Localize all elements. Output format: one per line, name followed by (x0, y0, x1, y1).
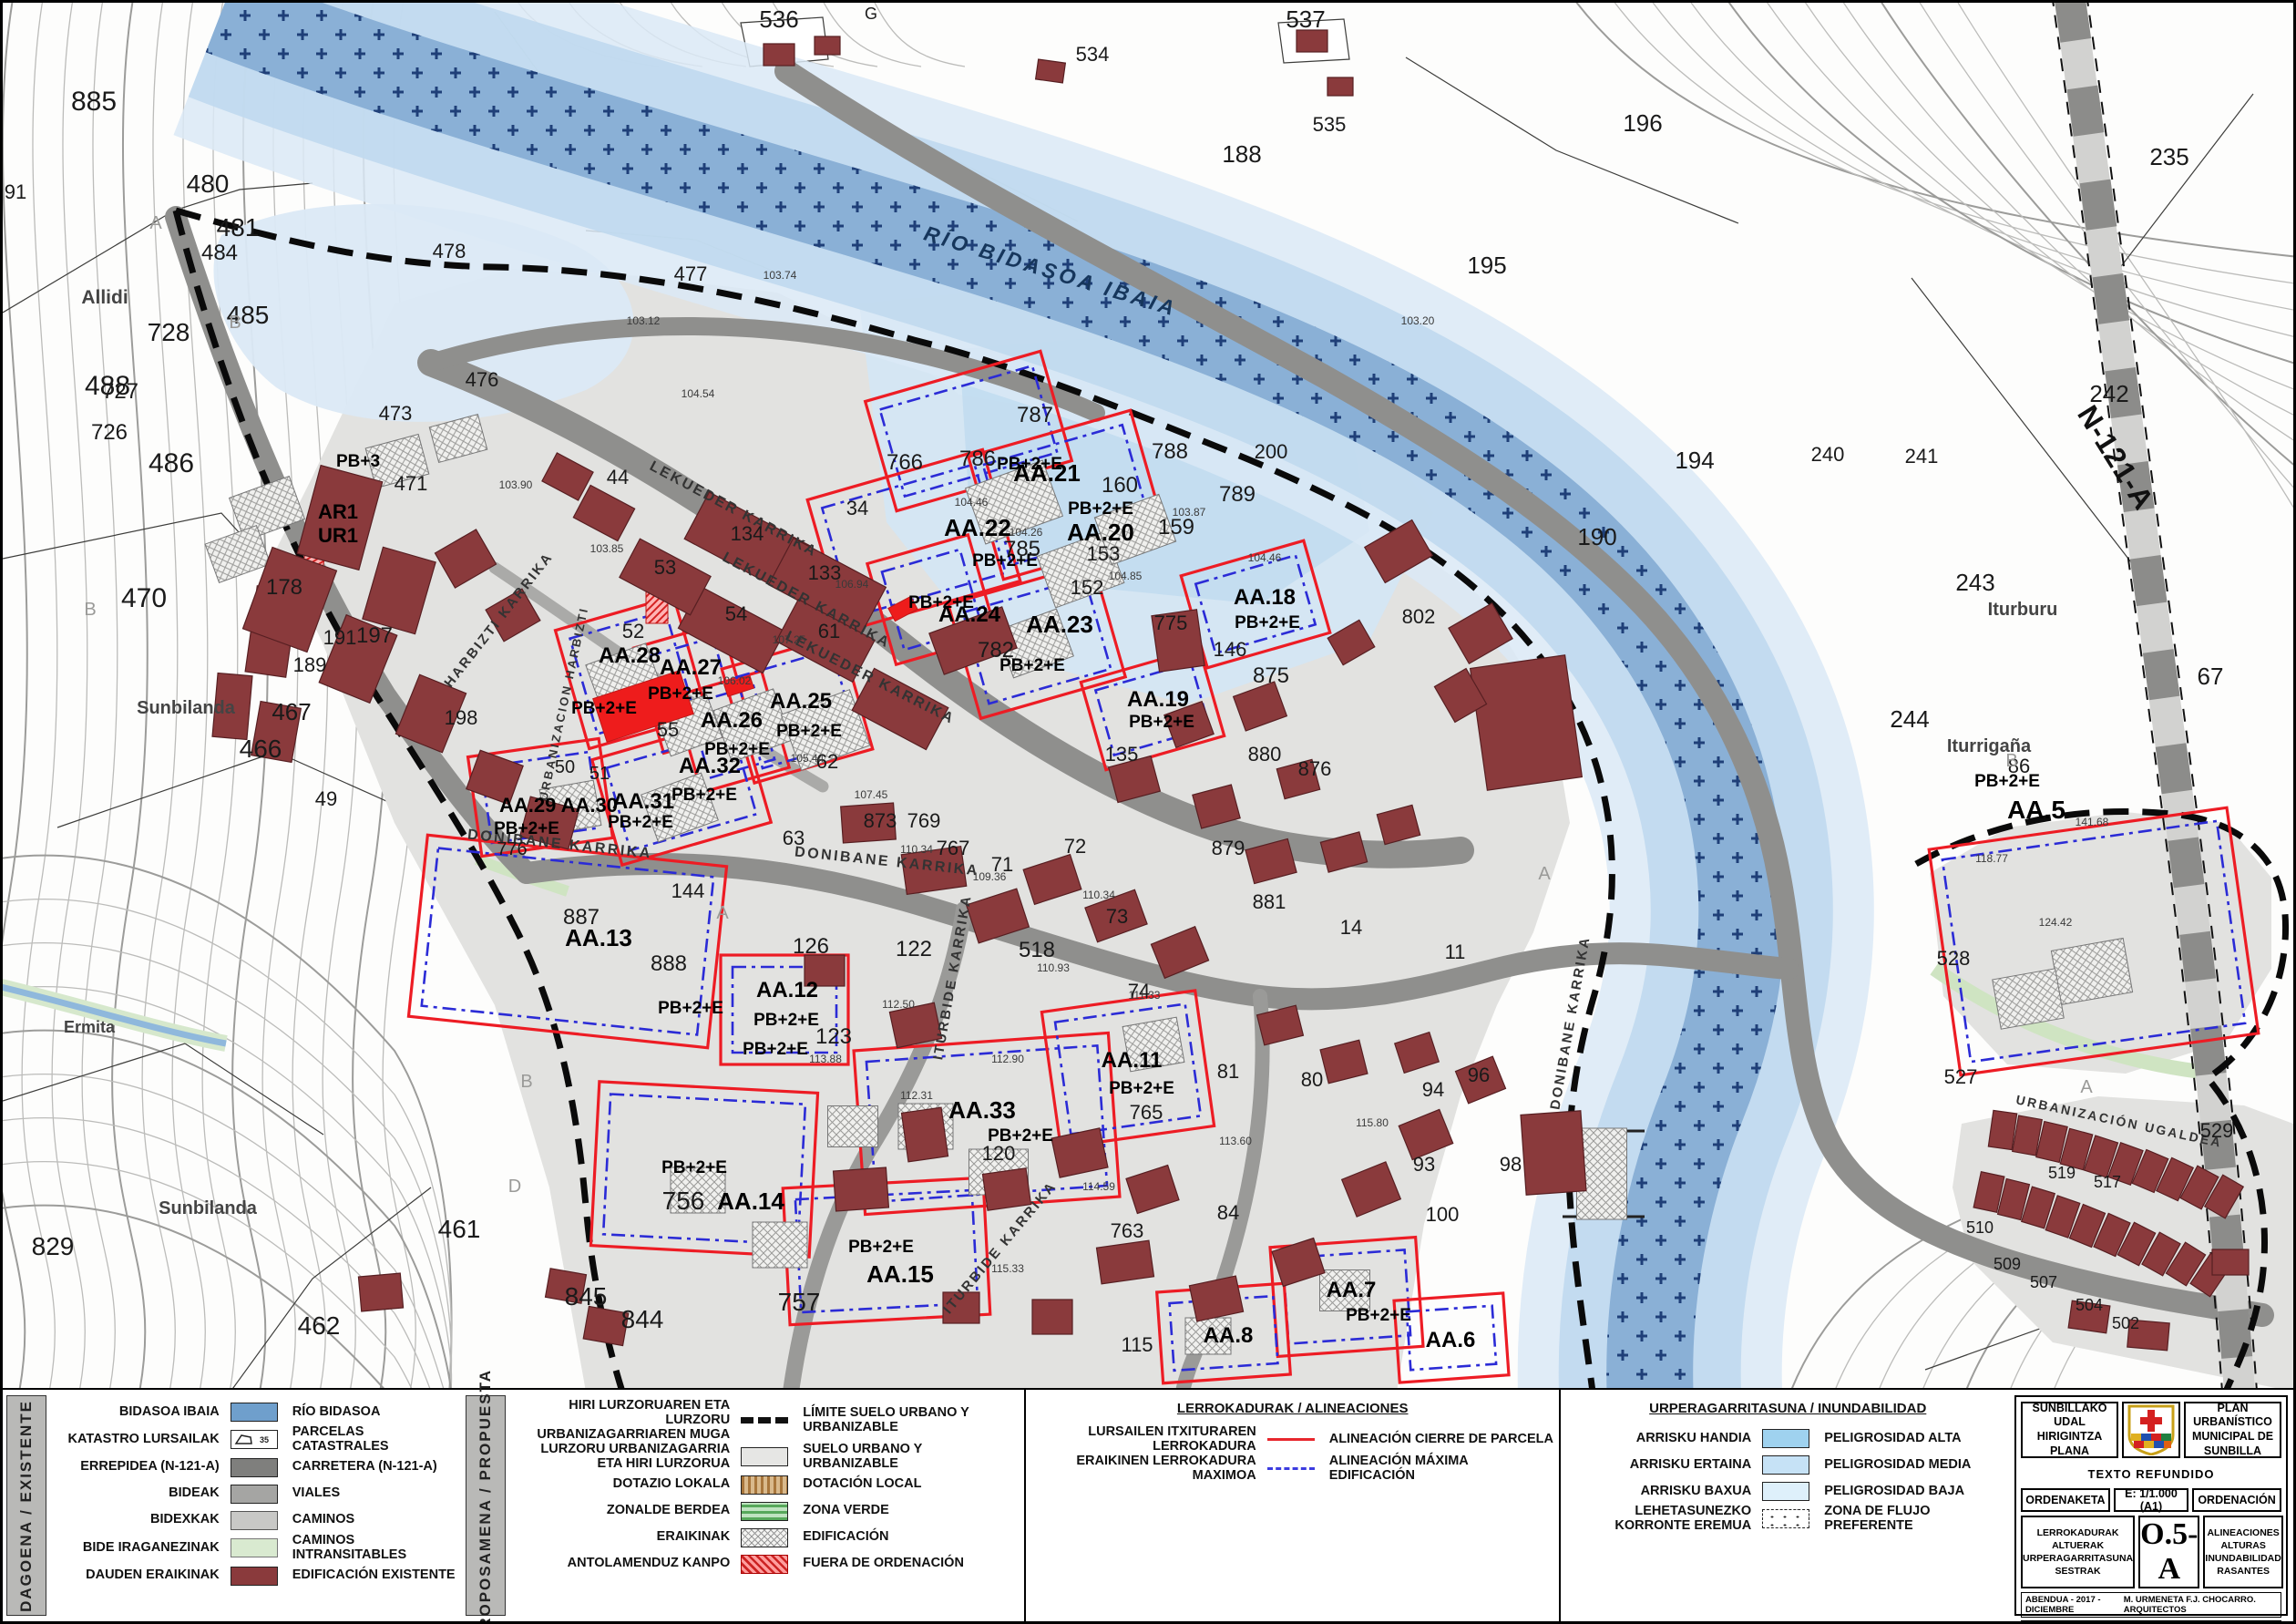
map-label-n: 476 (466, 368, 499, 391)
existing-row-4: BIDEXKAKCAMINOS (56, 1507, 456, 1534)
map-label-n: 881 (1253, 890, 1286, 913)
map-label-n: 767 (937, 837, 970, 859)
map-label-N: 196 (1623, 109, 1662, 137)
map-label-n: 875 (1253, 663, 1289, 688)
legend-swatch-road (231, 1458, 278, 1477)
map-label-p: PB+2+E (743, 1040, 808, 1059)
map-label-n: 467 (272, 698, 311, 725)
legend-label-eu: ZONALDE BERDEA (515, 1504, 731, 1518)
map-label-pl: Allidi (81, 287, 128, 308)
inundabilidad-row-3: LEHETASUNEZKO KORRONTE EREMUAZONA DE FLU… (1566, 1505, 2009, 1534)
legend-label-eu: ARRISKU HANDIA (1566, 1432, 1751, 1446)
ordenaketa-label: ORDENAKETA (2021, 1488, 2110, 1512)
map-label-n: 765 (1130, 1101, 1163, 1124)
legend-swatch-flujo (1762, 1509, 1809, 1528)
legend-label-eu: ERAIKINAK (515, 1530, 731, 1545)
map-label-e: 104.46 (1248, 551, 1282, 564)
map-label-n: 471 (395, 472, 428, 495)
map-label-N: 728 (148, 318, 190, 346)
map-label-z: AA.18 (1234, 585, 1296, 610)
map-label-e: 104.85 (1109, 570, 1143, 582)
map-label-p: PB+2+E (1129, 713, 1194, 732)
map-label-p: PB+2+E (571, 699, 637, 718)
map-label-e: 110.34 (1082, 889, 1115, 901)
map-label-N: 536 (759, 5, 798, 33)
map-label-e: 111.33 (1129, 989, 1161, 1002)
map-label-e: 105.44 (791, 752, 825, 765)
map-label-lt: A (149, 213, 162, 233)
map-label-n: 115 (1121, 1333, 1153, 1356)
map-label-n: 879 (1212, 837, 1245, 859)
building (834, 1167, 889, 1211)
map-label-n: 134 (731, 522, 764, 545)
map-label-pl: Iturburu (1988, 600, 2058, 620)
legend-label-eu: BIDEAK (56, 1486, 220, 1501)
legend-label-es: PELIGROSIDAD MEDIA (1824, 1458, 2009, 1473)
map-label-N: 466 (240, 735, 282, 763)
map-label-N: 188 (1222, 140, 1261, 168)
map-label-p: PB+2+E (494, 819, 559, 838)
legend-label-es: PELIGROSIDAD ALTA (1824, 1432, 2009, 1446)
map-label-p: PB+2+E (1109, 1079, 1174, 1098)
proposal-row-0: HIRI LURZORUAREN ETA LURZORU URBANIZAGAR… (515, 1399, 1019, 1443)
map-label-N: 235 (2149, 143, 2188, 170)
proposal-row-3: ZONALDE BERDEAZONA VERDE (515, 1498, 1019, 1525)
map-label-pl: Ermita (64, 1018, 116, 1036)
map-label-n: 61 (818, 620, 840, 642)
existing-row-3: BIDEAKVIALES (56, 1481, 456, 1507)
legend-label-eu: LEHETASUNEZKO KORRONTE EREMUA (1566, 1505, 1751, 1534)
legend-swatch-verde (741, 1502, 788, 1521)
map-label-N: 243 (1955, 569, 1994, 596)
map-label-p: PB+2+E (848, 1238, 914, 1257)
legend-swatch-alred (1267, 1438, 1315, 1441)
map-label-n: 122 (896, 937, 932, 961)
proposal-row-5: ANTOLAMENDUZ KANPOFUERA DE ORDENACIÓN (515, 1551, 1019, 1578)
map-label-n: 509 (1994, 1255, 2021, 1273)
map-label-n: 789 (1219, 482, 1256, 507)
edification-hatch (1993, 969, 2064, 1029)
map-label-N: 190 (1577, 523, 1616, 550)
map-label-n: 189 (293, 653, 327, 676)
legend-swatch-baja (1762, 1482, 1809, 1501)
map-label-z: AA.7 (1327, 1278, 1377, 1302)
map-label-z: AA.15 (866, 1260, 934, 1288)
map-label-N: 462 (298, 1311, 341, 1340)
building (1096, 1240, 1153, 1284)
legend-bar-existing: DAGOENA / EXISTENTE (6, 1395, 46, 1616)
legend-alineaciones: LERROKADURAK / ALINEACIONES LURSAILEN IT… (1024, 1390, 1559, 1621)
map-label-n: 880 (1248, 743, 1282, 766)
map-label-n: 159 (1158, 515, 1194, 540)
map-label-n: 507 (2030, 1273, 2057, 1291)
map-label-e: 115.80 (1356, 1116, 1389, 1129)
map-label-p: PB+2+E (908, 593, 974, 612)
map-label-p: PB+3 (336, 452, 380, 471)
map-label-n: 502 (2112, 1314, 2139, 1332)
building (358, 1273, 403, 1311)
title-plan: PLAN URBANÍSTICOMUNICIPAL DE SUNBILLA (2184, 1402, 2281, 1458)
map-label-e: 141.68 (2076, 816, 2109, 828)
map-label-n: 776 (497, 839, 527, 859)
map-label-n: 73 (1106, 905, 1128, 928)
legend-swatch-media (1762, 1455, 1809, 1475)
map-label-n: 53 (654, 556, 676, 579)
map-label-n: 178 (266, 575, 302, 600)
map-label-n: 135 (1105, 743, 1139, 766)
map-label-n: 241 (1905, 445, 1939, 468)
map-label-p: PB+2+E (776, 722, 842, 741)
map-label-N: 67 (2198, 663, 2224, 690)
map-label-lt: B (84, 600, 96, 620)
map-label-pl: Sunbilanda (159, 1198, 258, 1218)
map-label-n: 782 (978, 638, 1014, 663)
legend-label-es: ALINEACIÓN CIERRE DE PARCELA (1329, 1433, 1554, 1447)
map-label-e: 113.88 (809, 1053, 842, 1065)
map-label-z: AA.6 (1426, 1328, 1476, 1352)
map-label-z: AA.33 (948, 1096, 1016, 1124)
alineacion-row-1: ERAIKINEN LERROKADURA MAXIMOAALINEACIÓN … (1031, 1454, 1553, 1484)
legend-label-eu: KATASTRO LURSAILAK (56, 1433, 220, 1447)
map-label-n: 197 (356, 623, 393, 648)
map-label-n: 51 (589, 764, 610, 784)
map-label-e: 103.90 (499, 478, 533, 491)
map-label-e: 118.77 (1975, 852, 2008, 865)
map-label-N: 829 (32, 1232, 75, 1260)
map-label-n: 727 (102, 379, 138, 404)
map-label-N: 242 (2089, 380, 2128, 407)
building (815, 36, 840, 55)
map-label-e: 110.93 (1037, 961, 1070, 974)
inundabilidad-row-1: ARRISKU ERTAINAPELIGROSIDAD MEDIA (1566, 1452, 2009, 1478)
inundabilidad-row-0: ARRISKU HANDIAPELIGROSIDAD ALTA (1566, 1425, 2009, 1452)
proposal-row-1: LURZORU URBANIZAGARRIA ETA HIRI LURZORUA… (515, 1443, 1019, 1472)
map-label-n: 123 (815, 1024, 852, 1049)
map-label-lt: A (1538, 864, 1551, 884)
legend-swatch-intrans (231, 1538, 278, 1557)
edification-hatch (753, 1222, 807, 1268)
map-label-e: 104.26 (1010, 526, 1043, 539)
proposal-row-2: DOTAZIO LOKALADOTACIÓN LOCAL (515, 1472, 1019, 1498)
legend-label-es: CAMINOS (292, 1513, 456, 1527)
map-label-N: 480 (187, 170, 230, 198)
map-label-n: 152 (1071, 576, 1104, 599)
legend-label-eu: ARRISKU ERTAINA (1566, 1458, 1751, 1473)
legend-band: DAGOENA / EXISTENTE BIDASOA IBAIARÍO BID… (3, 1388, 2293, 1621)
map-label-n: 120 (982, 1142, 1016, 1165)
map-label-z: AA.22 (944, 514, 1011, 541)
legend-swatch-dotacion (741, 1475, 788, 1495)
existing-row-1: KATASTRO LURSAILAK35PARCELAS CATASTRALES (56, 1425, 456, 1454)
map-label-z: AA.23 (1026, 611, 1093, 638)
map-label-e: 103.85 (590, 542, 624, 555)
map-label-p: PB+2+E (661, 1158, 727, 1177)
svg-text:35: 35 (260, 1435, 269, 1444)
map-label-e: 107.25 (773, 633, 806, 646)
sheet-subject-es: ALINEACIONESALTURASINUNDABILIDADRASANTES (2203, 1516, 2282, 1588)
legend-label-eu: DAUDEN ERAIKINAK (56, 1568, 220, 1583)
scale-label: E: 1/1.000 (A1) (2114, 1488, 2188, 1512)
map-label-p: PB+2+E (1068, 499, 1133, 519)
map-label-n: 240 (1811, 443, 1845, 466)
map-label-n: 91 (5, 180, 26, 203)
map-label-e: 113.60 (1219, 1135, 1252, 1147)
proposal-row-4: ERAIKINAKEDIFICACIÓN (515, 1525, 1019, 1551)
map-label-n: 510 (1966, 1218, 1994, 1237)
map-label-p: PB+2+E (648, 684, 713, 704)
building (1327, 77, 1353, 96)
map-label-z: AR1 (318, 500, 358, 523)
map-label-n: 94 (1422, 1078, 1444, 1101)
map-label-z: AA.14 (717, 1187, 784, 1215)
map-label-lt: A (716, 903, 729, 923)
map-label-e: 112.90 (991, 1053, 1024, 1065)
map-label-p: PB+2+E (1346, 1306, 1411, 1325)
legend-bar-proposal: PROPOSAMENA / PROPUESTA (466, 1395, 506, 1616)
map-label-N: 845 (565, 1282, 608, 1311)
legend-proposal: HIRI LURZORUAREN ETA LURZORU URBANIZAGAR… (509, 1390, 1024, 1621)
map-label-N: 481 (217, 213, 260, 242)
map-label-lt: B (520, 1072, 532, 1092)
legend-label-es: ZONA DE FLUJO PREFERENTE (1824, 1505, 2009, 1534)
building (1521, 1111, 1586, 1195)
map-label-n: 786 (959, 447, 996, 471)
map-label-lt: B (2005, 751, 2017, 771)
legend-swatch-limite (741, 1417, 788, 1424)
legend-label-eu: LURSAILEN ITXITURAREN LERROKADURA (1031, 1425, 1256, 1454)
legend-label-eu: BIDASOA IBAIA (56, 1405, 220, 1420)
legend-swatch-edif (741, 1528, 788, 1547)
legend-swatch-edifex (231, 1567, 278, 1586)
map-label-n: 876 (1298, 757, 1332, 780)
legend-label-es: ZONA VERDE (803, 1504, 1019, 1518)
map-label-n: 504 (2076, 1296, 2103, 1314)
map-label-n: 160 (1102, 473, 1138, 498)
map-label-n: 72 (1064, 835, 1086, 858)
legend-swatch-urbano (741, 1447, 788, 1466)
map-label-n: 100 (1426, 1203, 1460, 1226)
legend-label-eu: HIRI LURZORUAREN ETA LURZORU URBANIZAGAR… (515, 1399, 731, 1443)
map-label-n: 473 (379, 402, 413, 425)
map-label-n: 200 (1255, 440, 1288, 463)
map-label-n: 478 (433, 240, 466, 262)
sheet-code: O.5-A (2138, 1516, 2199, 1588)
map-label-z: AA.19 (1127, 687, 1189, 712)
legend-label-es: CAMINOS INTRANSITABLES (292, 1534, 456, 1563)
inundabilidad-row-2: ARRISKU BAXUAPELIGROSIDAD BAJA (1566, 1478, 2009, 1505)
map-label-n: 54 (725, 602, 747, 625)
legend-inundabilidad: URPERAGARRITASUNA / INUNDABILIDAD ARRISK… (1559, 1390, 2014, 1621)
edification-hatch (828, 1106, 878, 1147)
legend-label-es: FUERA DE ORDENACIÓN (803, 1557, 1019, 1571)
ordenacion-label: ORDENACIÓN (2192, 1488, 2281, 1512)
legend-label-es: PELIGROSIDAD BAJA (1824, 1485, 2009, 1499)
map-label-N: 244 (1890, 705, 1929, 733)
title-udal: SUNBILLAKO UDALHIRIGINTZA PLANA (2021, 1402, 2118, 1458)
map-label-e: 110.34 (900, 843, 933, 856)
map-label-n: 153 (1087, 542, 1121, 565)
map-label-n: 527 (1944, 1065, 1978, 1088)
map-label-e: 106.02 (718, 674, 752, 687)
building (2212, 1249, 2249, 1275)
map-label-e: 124.42 (2039, 916, 2073, 929)
map-label-z: AA.5 (2007, 796, 2065, 824)
building (982, 1168, 1030, 1210)
map-label-n: 34 (846, 497, 868, 519)
map-label-p: PB+2+E (704, 740, 770, 759)
map-label-e: 104.54 (682, 387, 715, 400)
map-label-p: PB+2+E (1235, 613, 1300, 632)
map-label-n: 788 (1152, 439, 1188, 464)
existing-row-5: BIDE IRAGANEZINAKCAMINOS INTRANSITABLES (56, 1534, 456, 1563)
map-label-N: 844 (621, 1305, 664, 1333)
map-label-N: 194 (1675, 447, 1714, 474)
map-label-n: 63 (783, 827, 805, 849)
legend-label-es: DOTACIÓN LOCAL (803, 1477, 1019, 1492)
plan-sheet: RÍO BIDASOA IBAIAN-121-AAllidiSunbilanda… (0, 0, 2296, 1624)
existing-row-2: ERREPIDEA (N-121-A)CARRETERA (N-121-A) (56, 1454, 456, 1481)
map-label-n: 93 (1413, 1153, 1435, 1176)
legend-label-eu: ANTOLAMENDUZ KANPO (515, 1557, 731, 1571)
map-label-n: 98 (1500, 1153, 1522, 1176)
alineacion-row-0: LURSAILEN ITXITURAREN LERROKADURAALINEAC… (1031, 1425, 1553, 1454)
legend-swatch-cad: 35 (231, 1430, 278, 1449)
map-label-n: 763 (1111, 1219, 1144, 1242)
legend-swatch-river (231, 1403, 278, 1422)
legend-header-inundabilidad: URPERAGARRITASUNA / INUNDABILIDAD (1566, 1401, 2009, 1416)
building (1032, 1300, 1072, 1334)
map-label-pl: Iturrigaña (1947, 736, 2032, 756)
legend-swatch-alta (1762, 1429, 1809, 1448)
map-label-n: 775 (1154, 612, 1188, 634)
legend-label-es: CARRETERA (N-121-A) (292, 1460, 456, 1475)
building (1988, 1110, 2016, 1149)
date-authors-strip: ABENDUA - 2017 - DICIEMBREM. URMENETA F.… (2021, 1592, 2281, 1618)
map-label-n: 477 (674, 262, 708, 285)
codigo-strip: CÓDIGO:18096 (2021, 1620, 2281, 1624)
existing-row-6: DAUDEN ERAIKINAKEDIFICACIÓN EXISTENTE (56, 1563, 456, 1589)
map-label-n: 766 (887, 450, 923, 475)
map-label-n: 80 (1301, 1068, 1323, 1091)
map-label-e: 107.45 (855, 788, 888, 801)
map-label-p: PB+2+E (608, 813, 673, 832)
map-label-n: 44 (607, 466, 629, 488)
map-label-n: 146 (1214, 638, 1247, 661)
existing-row-0: BIDASOA IBAIARÍO BIDASOA (56, 1399, 456, 1425)
map-label-n: 84 (1217, 1201, 1239, 1224)
map-label-n: 802 (1402, 605, 1436, 628)
map-label-e: 103.74 (764, 269, 797, 282)
map-label-n: 534 (1076, 43, 1110, 66)
map-label-e: 112.31 (900, 1089, 933, 1102)
map-label-n: 518 (1019, 938, 1055, 962)
legend-label-es: ALINEACIÓN MÁXIMA EDIFICACIÓN (1329, 1454, 1554, 1484)
map-label-n: 55 (657, 718, 679, 741)
legend-label-eu: ERAIKINEN LERROKADURA MAXIMOA (1031, 1454, 1256, 1484)
map-label-n: 517 (2094, 1173, 2121, 1191)
legend-label-es: LÍMITE SUELO URBANO Y URBANIZABLE (803, 1406, 1019, 1435)
map-label-n: 484 (201, 241, 238, 265)
map-label-z: AA.29 AA.30 (499, 794, 618, 817)
map-label-lt: B (229, 313, 241, 333)
map-label-n: 50 (555, 757, 575, 777)
map-label-z: AA.31 (612, 789, 674, 814)
map-label-n: 529 (2200, 1119, 2234, 1142)
map-label-n: 519 (2048, 1164, 2076, 1182)
map-label-pl: Sunbilanda (137, 698, 236, 718)
map-label-N: 885 (71, 87, 117, 117)
map-label-N: 757 (778, 1288, 821, 1316)
legend-label-es: EDIFICACIÓN EXISTENTE (292, 1568, 456, 1583)
map-label-z: AA.25 (770, 689, 832, 714)
legend-swatch-vial (231, 1485, 278, 1504)
map-label-e: 103.20 (1401, 314, 1435, 327)
map-label-n: 49 (315, 787, 337, 810)
map-label-N: 486 (149, 448, 194, 478)
map-label-e: 103.12 (627, 314, 661, 327)
legend-label-es: RÍO BIDASOA (292, 1405, 456, 1420)
map-label-n: 726 (91, 420, 128, 445)
map-label-N: 537 (1286, 5, 1325, 33)
map-label-n: 198 (445, 706, 478, 729)
map-label-n: 11 (1445, 940, 1466, 963)
sheet-subject-eu: LERROKADURAKALTUERAKURPERAGARRITASUNASES… (2021, 1516, 2135, 1588)
map-label-n: 535 (1313, 113, 1347, 136)
map-label-z: AA.12 (756, 978, 818, 1002)
map-label-e: 114.59 (1082, 1180, 1115, 1193)
map-label-e: 104.46 (955, 496, 989, 509)
map-label-lt: A (2080, 1077, 2093, 1097)
legend-label-eu: DOTAZIO LOKALA (515, 1477, 731, 1492)
building (1471, 655, 1583, 790)
map-label-z: AA.28 (599, 643, 661, 668)
legend-label-eu: ARRISKU BAXUA (1566, 1485, 1751, 1499)
map-label-N: 461 (438, 1215, 481, 1243)
map-label-e: 103.87 (1173, 506, 1206, 519)
building (1036, 59, 1066, 83)
map-label-e: 106.94 (835, 578, 869, 591)
legend-label-eu: BIDE IRAGANEZINAK (56, 1541, 220, 1556)
legend-header-alineaciones: LERROKADURAK / ALINEACIONES (1031, 1401, 1553, 1416)
map-label-p: PB+2+E (671, 786, 737, 805)
legend-swatch-alblue (1267, 1467, 1315, 1470)
map-label-n: 888 (651, 951, 687, 976)
map-label-n: 787 (1017, 403, 1053, 427)
map-label-n: 144 (671, 879, 705, 902)
map-label-n: 126 (793, 934, 829, 959)
map-label-z: AA.11 (1102, 1048, 1163, 1073)
map-label-n: 191 (323, 626, 357, 649)
map-label-n: 785 (1004, 537, 1040, 561)
map-canvas: RÍO BIDASOA IBAIAN-121-AAllidiSunbilanda… (3, 3, 2293, 1392)
map-label-e: 109.36 (973, 870, 1007, 883)
map-label-N: 195 (1467, 252, 1506, 279)
legend-label-eu: BIDEXKAK (56, 1513, 220, 1527)
legend-swatch-camino (231, 1511, 278, 1530)
legend-label-es: SUELO URBANO Y URBANIZABLE (803, 1443, 1019, 1472)
map-label-e: 112.50 (882, 998, 915, 1011)
map-label-N: 470 (121, 583, 167, 613)
map-label-n: G (865, 5, 877, 23)
building (1297, 30, 1327, 52)
map-label-lt: D (508, 1177, 521, 1197)
map-label-n: 769 (907, 809, 941, 832)
building (901, 1107, 948, 1162)
map-label-n: 81 (1217, 1060, 1239, 1083)
map-label-N: 756 (662, 1187, 705, 1215)
map-label-p: PB+2+E (997, 455, 1062, 474)
legend-label-es: PARCELAS CATASTRALES (292, 1425, 456, 1454)
